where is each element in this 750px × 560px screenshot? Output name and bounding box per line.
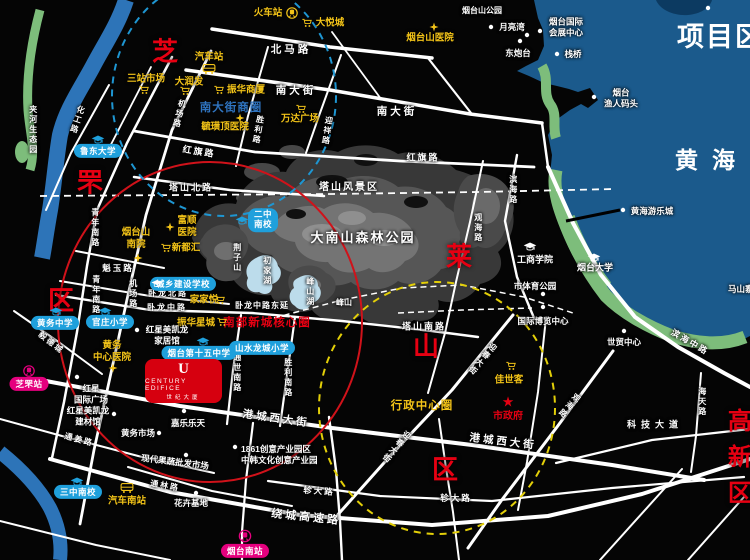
hospital-icon	[134, 254, 143, 263]
poi-yantaishan-south-hospital: 烟台山南院	[122, 227, 151, 251]
road-tongshinanlu: 通世南路	[232, 353, 242, 393]
road-jichanglu-s: 机场路	[128, 279, 138, 309]
star-icon: ★	[502, 394, 515, 411]
chujia-lake-label: 初家湖	[262, 256, 272, 286]
text-line: 烟台国际	[549, 16, 583, 26]
poi-city-government: 市政府	[493, 411, 523, 423]
text-line: 会展中心	[549, 27, 583, 37]
text-line: 红星美凯龙	[146, 324, 189, 334]
poi-sanzhong-south-campus: 三中南校	[54, 485, 102, 499]
grad-cap-icon	[99, 308, 112, 317]
road-kejidadao: 科技大道	[627, 420, 683, 431]
text-line: 烟台山	[122, 227, 151, 238]
district-char-lai: 莱	[446, 241, 472, 272]
poi-bus-station: 汽车站	[195, 51, 224, 62]
yantaishan-park-label: 烟台山公园	[462, 6, 502, 16]
logo-name-cn: 世纪大厦	[166, 393, 200, 401]
train-icon	[239, 530, 252, 543]
grad-cap-icon	[236, 217, 249, 226]
poi-zhifu-station: 芝罘站	[9, 377, 48, 391]
poi-hongxing-guoji: 红星国际广场	[74, 383, 108, 404]
poi-south-bus-station: 汽车南站	[108, 495, 146, 506]
page-title: 项目区位	[677, 21, 750, 53]
text-line: 中心医院	[93, 352, 131, 363]
cart-icon	[214, 85, 225, 95]
road-tashanbeilu: 塔山北路	[169, 183, 213, 194]
cart-icon	[302, 18, 313, 28]
text-line: 建材馆	[75, 416, 101, 426]
district-char-shan: 山	[413, 331, 439, 362]
poi-yantai-south-station: 烟台南站	[221, 544, 269, 558]
poi-huangwu-market: 黄务市场	[121, 428, 155, 438]
text-line: 南校	[254, 219, 272, 229]
poi-guanzhuang-school: 官庄小学	[86, 315, 134, 329]
text-line: 烟台	[612, 87, 629, 97]
poi-1861-park: 1861创意产业园区中韩文化创意产业园	[241, 444, 318, 465]
hospital-icon	[236, 114, 245, 123]
logo-emblem: U	[178, 362, 189, 377]
district-char-qu-laishan: 区	[432, 454, 458, 485]
map-canvas	[0, 0, 750, 560]
fengshan-label: 峰山	[336, 298, 352, 308]
cart-icon	[139, 85, 150, 95]
zone-nanbu-xincheng: 南部新城核心圈	[223, 317, 311, 331]
text-line: 富顺	[177, 215, 196, 226]
poi-dongpaotai: 东炮台	[505, 48, 531, 58]
poi-hongxing-jiaju: 红星美凯龙家居馆	[146, 324, 189, 345]
grad-cap-icon	[588, 254, 601, 263]
district-gaoxinqu: 高新区	[722, 408, 750, 516]
river-south	[0, 452, 61, 560]
poi-fushun-hospital: 富顺医院	[177, 215, 196, 239]
road-binhailu: 滨海路	[508, 175, 518, 205]
cart-icon	[161, 243, 172, 253]
poi-huangwu-hospital: 黄务中心医院	[93, 340, 131, 364]
road-zhendalu-w: 轸大路	[303, 485, 335, 497]
jingzishan-label: 荆子山	[232, 243, 242, 273]
cart-icon	[296, 104, 307, 114]
text-line: 医院	[177, 227, 196, 238]
poi-convention-center: 烟台国际会展中心	[549, 16, 583, 37]
road-nandajie-w: 南大街	[276, 85, 317, 98]
road-tashannanlu: 塔山南路	[402, 322, 446, 333]
road-wolongzhonglu: 卧龙中路	[147, 303, 187, 313]
poi-sports-park: 市体育公园	[514, 281, 557, 291]
text-line: 1861创意产业园区	[241, 444, 311, 454]
text-line: 红星美凯龙	[67, 405, 110, 415]
logo-name-en: CENTURY EDIFICE	[145, 378, 222, 392]
poi-zhenhua-shangsha: 振华商厦	[227, 84, 265, 95]
text-line: 红星	[82, 383, 99, 393]
text-line: 二中	[254, 209, 272, 219]
district-char-zhi: 芝	[152, 36, 178, 67]
poi-hongxing-jiancai: 红星美凯龙建材馆	[67, 405, 110, 426]
poi-yantaishan-hospital: 烟台山医院	[406, 32, 454, 43]
road-shenglinanlu: 胜利南路	[283, 358, 293, 398]
cart-icon	[180, 86, 191, 96]
poi-shanshui-school: 山水龙城小学	[229, 341, 295, 355]
poi-world-trade-center: 世贸中心	[607, 337, 641, 347]
poi-yuhuangding-hospital: 毓璜顶医院	[201, 121, 249, 132]
cart-icon	[506, 361, 517, 371]
poi-no15-middle-school: 烟台第十五中学	[161, 346, 236, 360]
train-icon	[23, 365, 35, 377]
cart-icon	[215, 295, 226, 305]
poi-wanda-plaza: 万达广场	[281, 113, 319, 124]
grad-cap-icon	[92, 136, 105, 145]
jiahe-park-green2	[15, 141, 29, 163]
bus-icon	[203, 64, 216, 74]
poi-gongshang-college: 工商学院	[517, 255, 553, 266]
grad-cap-icon	[50, 308, 63, 317]
poi-huanghai-amusement: 黄海游乐城	[631, 206, 674, 216]
text-line: 国际广场	[74, 394, 108, 404]
text-line: 家居馆	[154, 335, 180, 345]
poi-expo-center: 国际博览中心	[517, 316, 568, 326]
poi-mashan: 马山寨	[728, 284, 750, 294]
poi-dayuecheng: 大悦城	[316, 17, 345, 28]
poi-zhanqiao: 栈桥	[564, 49, 581, 59]
grad-cap-icon	[524, 243, 537, 252]
poi-jialeletian: 嘉乐乐天	[171, 418, 205, 428]
text-line: 中韩文化创意产业园	[241, 455, 318, 465]
grad-cap-icon	[151, 280, 163, 288]
poi-xinduhui: 新都汇	[172, 242, 201, 253]
zone-xingzheng: 行政中心圈	[391, 400, 454, 414]
text-line: 南院	[126, 239, 145, 250]
poi-ludong-university: 鲁东大学	[74, 144, 122, 158]
poi-yueliangwan: 月亮湾	[499, 22, 525, 32]
road-nandajie-e: 南大街	[377, 106, 418, 119]
poi-sanzhan-market: 三站市场	[127, 73, 165, 84]
poi-railway-station: 火车站	[254, 7, 283, 18]
fengshan-lake-label: 峰山湖	[305, 277, 315, 307]
cart-icon	[217, 317, 228, 327]
tashan-scenic-label: 塔山风景区	[319, 182, 379, 194]
road-guanhailu-n: 观海路	[473, 213, 483, 243]
road-wolong-dongyan: 卧龙中路东延	[235, 301, 289, 311]
road-hongqilu-e: 红旗路	[406, 153, 439, 164]
grad-cap-icon	[71, 478, 84, 487]
poi-jiashike: 佳世客	[495, 374, 524, 385]
hospital-icon	[430, 23, 439, 32]
hospital-icon	[166, 223, 175, 232]
dananshan-park-label: 大南山森林公园	[310, 230, 415, 246]
hospital-icon	[109, 364, 118, 373]
text-line: 黄务	[102, 340, 121, 351]
poi-flower-base: 花卉基地	[174, 498, 208, 508]
poi-fisherman-wharf: 烟台渔人码头	[604, 87, 638, 108]
poi-erzhong-south-campus: 二中南校	[248, 208, 278, 232]
road-haitianlu: 海天路	[697, 387, 707, 417]
train-icon	[286, 7, 298, 19]
bus-icon	[121, 483, 134, 493]
district-char-fu: 罘	[77, 167, 103, 198]
zone-nandajie: 南大街商圈	[200, 102, 263, 116]
poi-huangwu-middle-school: 黄务中学	[31, 316, 79, 330]
road-kuiyulu: 魁玉路	[102, 263, 134, 273]
poi-yantai-university: 烟台大学	[577, 263, 613, 274]
project-logo: U CENTURY EDIFICE 世纪大厦	[145, 359, 222, 403]
road-zhendalu-e: 轸大路	[440, 493, 472, 503]
road-beimalu: 北马路	[271, 44, 312, 57]
text-line: 渔人码头	[604, 98, 638, 108]
road-qingniannanlu-n: 青年南路	[90, 208, 100, 248]
project-location-map: 项目区位 黄海 芝 罘 区 莱 山 区 高新区 夹河生态园 塔山风景区 大南山森…	[0, 0, 750, 560]
sea-label: 黄海	[675, 147, 749, 175]
grad-cap-icon	[197, 338, 210, 347]
jiahe-eco-park-label: 夹河生态园	[28, 105, 38, 155]
